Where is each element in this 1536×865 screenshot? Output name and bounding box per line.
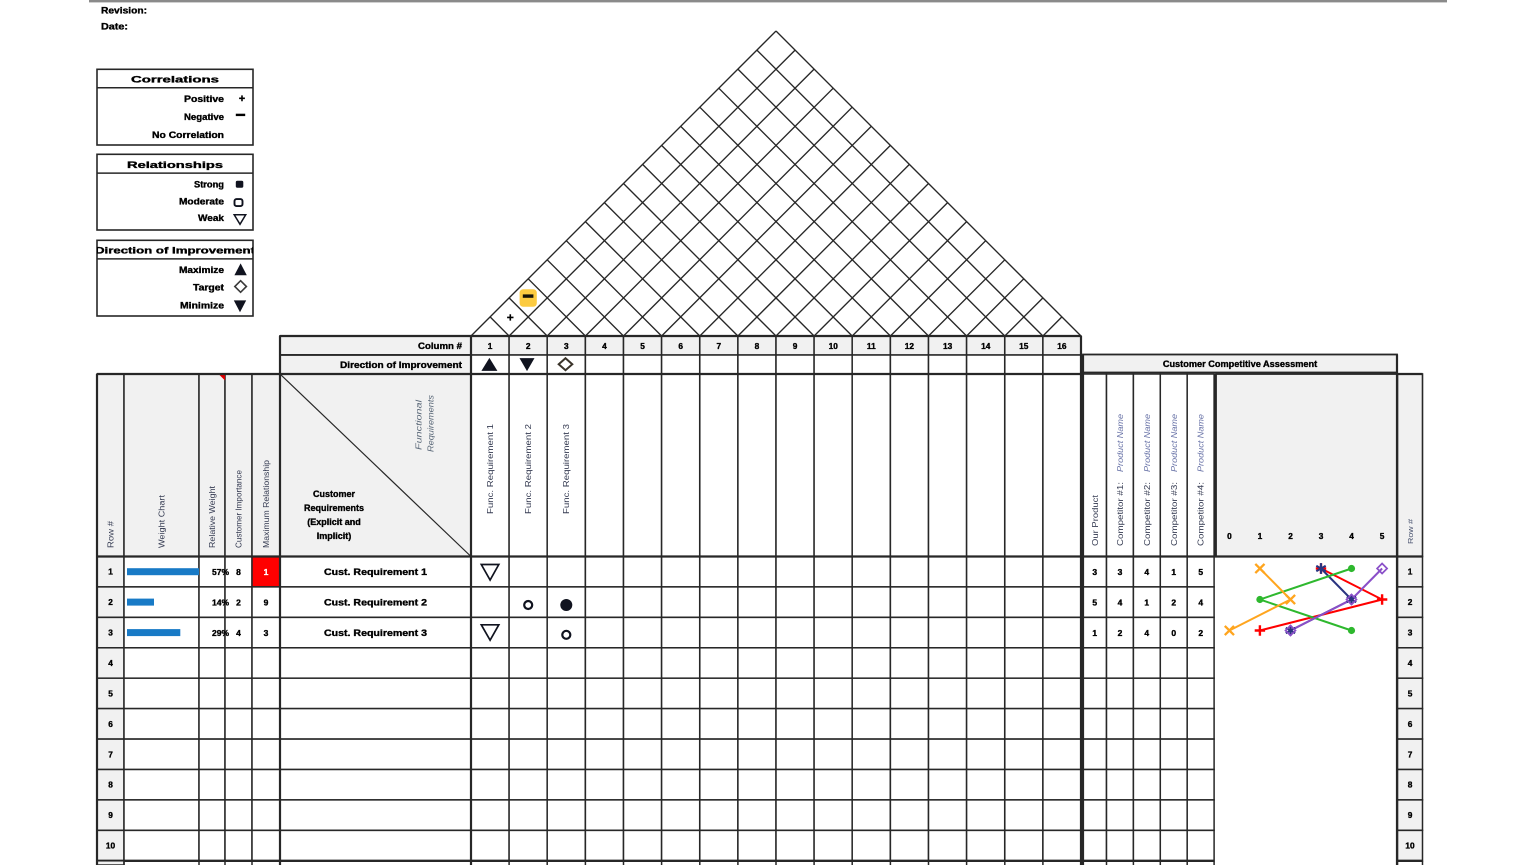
svg-text:15: 15 [1019,341,1029,351]
svg-text:3: 3 [1408,628,1413,638]
svg-text:Direction of Improvement: Direction of Improvement [95,246,255,256]
svg-text:1: 1 [264,567,269,577]
svg-text:2: 2 [1408,597,1413,607]
svg-text:2: 2 [526,341,531,351]
svg-text:2: 2 [1288,531,1293,541]
svg-text:8: 8 [755,341,760,351]
svg-text:Requirements: Requirements [427,395,436,452]
svg-text:Product Name: Product Name [1116,413,1125,472]
svg-text:Func. Requirement 1: Func. Requirement 1 [486,424,495,514]
svg-text:3: 3 [1092,567,1097,577]
svg-text:5: 5 [108,688,113,698]
svg-text:2: 2 [1198,628,1203,638]
svg-text:Moderate: Moderate [179,196,224,206]
svg-text:Maximum Relationship: Maximum Relationship [262,459,271,548]
svg-text:9: 9 [1408,810,1413,820]
svg-text:Revision:: Revision: [101,6,147,16]
svg-text:7: 7 [716,341,721,351]
svg-text:Relative Weight: Relative Weight [208,485,217,548]
svg-text:Product Name: Product Name [1197,413,1206,472]
svg-text:4: 4 [108,658,113,668]
svg-text:No Correlation: No Correlation [152,130,224,140]
svg-text:Func. Requirement 2: Func. Requirement 2 [524,424,533,514]
svg-text:1: 1 [1171,567,1176,577]
svg-text:Customer Competitive Assessmen: Customer Competitive Assessment [1163,359,1317,369]
svg-text:3: 3 [1319,531,1324,541]
svg-text:1: 1 [1408,567,1413,577]
svg-text:8: 8 [108,780,113,790]
svg-text:10: 10 [106,841,116,851]
svg-text:2: 2 [108,597,113,607]
svg-text:Competitor #4:: Competitor #4: [1197,482,1206,546]
svg-text:1: 1 [1258,531,1263,541]
svg-text:Date:: Date: [101,22,128,32]
svg-text:16: 16 [1057,341,1067,351]
svg-text:3: 3 [264,628,269,638]
svg-text:10: 10 [1405,841,1415,851]
svg-text:Customer Importance: Customer Importance [235,470,244,548]
svg-text:3: 3 [1118,567,1123,577]
svg-text:4: 4 [602,341,607,351]
svg-text:5: 5 [1198,567,1203,577]
svg-text:4: 4 [1118,597,1123,607]
svg-text:6: 6 [1408,719,1413,729]
svg-text:3: 3 [564,341,569,351]
svg-text:Direction of Improvement: Direction of Improvement [340,360,462,370]
svg-text:Relationships: Relationships [127,160,223,170]
svg-text:7: 7 [1408,749,1413,759]
svg-text:11: 11 [867,341,876,351]
svg-text:8: 8 [236,567,241,577]
svg-text:Weak: Weak [198,213,224,223]
svg-text:13: 13 [943,341,953,351]
svg-text:Strong: Strong [194,180,224,190]
svg-text:5: 5 [1092,597,1097,607]
svg-text:2: 2 [1171,597,1176,607]
svg-text:4: 4 [1349,531,1354,541]
svg-text:Row #: Row # [1406,518,1415,544]
svg-text:(Explicit and: (Explicit and [307,517,361,527]
svg-text:Implicit): Implicit) [317,531,352,541]
svg-text:14: 14 [981,341,991,351]
svg-text:1: 1 [488,341,493,351]
svg-text:Minimize: Minimize [180,301,224,311]
svg-text:Negative: Negative [184,112,224,122]
svg-text:2: 2 [236,597,241,607]
svg-text:Correlations: Correlations [131,75,219,85]
svg-text:Competitor #3:: Competitor #3: [1170,482,1179,546]
svg-text:Target: Target [193,282,224,292]
svg-text:Our Product: Our Product [1091,494,1100,546]
svg-text:Maximize: Maximize [179,265,224,275]
svg-text:1: 1 [1144,597,1149,607]
svg-text:14%: 14% [212,597,229,607]
svg-text:Cust. Requirement 3: Cust. Requirement 3 [324,628,427,638]
svg-text:4: 4 [1144,567,1149,577]
svg-text:9: 9 [108,810,113,820]
svg-text:Requirements: Requirements [304,503,364,513]
svg-text:Cust. Requirement 1: Cust. Requirement 1 [324,567,427,577]
svg-text:Column #: Column # [418,341,462,351]
svg-text:2: 2 [1118,628,1123,638]
svg-text:57%: 57% [212,567,229,577]
svg-text:Competitor #2:: Competitor #2: [1143,482,1152,546]
svg-text:8: 8 [1408,780,1413,790]
svg-text:0: 0 [1171,628,1176,638]
svg-text:1: 1 [1092,628,1097,638]
svg-text:Customer: Customer [313,489,356,499]
svg-text:Functional: Functional [415,400,424,450]
svg-text:29%: 29% [212,628,229,638]
svg-text:3: 3 [108,628,113,638]
svg-text:Cust. Requirement 2: Cust. Requirement 2 [324,597,427,607]
svg-text:4: 4 [236,628,241,638]
svg-text:Positive: Positive [184,94,224,104]
svg-text:5: 5 [1380,531,1385,541]
svg-text:9: 9 [793,341,798,351]
svg-text:4: 4 [1144,628,1149,638]
svg-text:9: 9 [264,597,269,607]
svg-text:Weight Chart: Weight Chart [158,494,167,548]
svg-text:10: 10 [829,341,839,351]
svg-text:7: 7 [108,749,113,759]
svg-text:5: 5 [640,341,645,351]
svg-text:4: 4 [1408,658,1413,668]
svg-text:5: 5 [1408,688,1413,698]
svg-text:4: 4 [1198,597,1203,607]
svg-text:0: 0 [1227,531,1232,541]
svg-text:Product Name: Product Name [1170,413,1179,472]
svg-text:Product Name: Product Name [1143,413,1152,472]
svg-text:12: 12 [905,341,915,351]
svg-text:6: 6 [108,719,113,729]
svg-text:Competitor #1:: Competitor #1: [1116,482,1125,546]
svg-text:1: 1 [108,567,113,577]
svg-text:Row #: Row # [107,520,116,548]
svg-text:Func. Requirement 3: Func. Requirement 3 [562,424,571,514]
svg-text:6: 6 [678,341,683,351]
